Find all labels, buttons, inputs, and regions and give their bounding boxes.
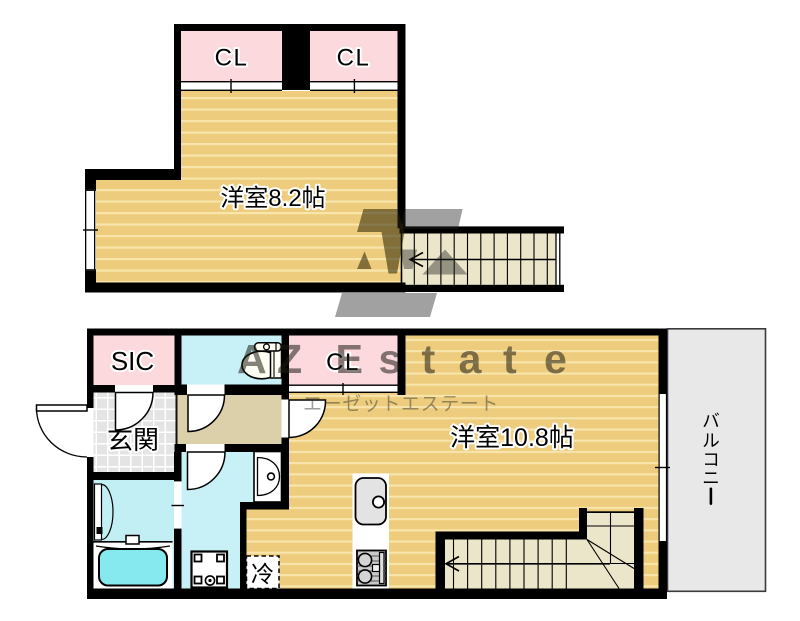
svg-text:エーゼットエステート: エーゼットエステート	[303, 393, 499, 415]
svg-text:コ: コ	[702, 450, 720, 470]
svg-text:SIC: SIC	[111, 346, 154, 376]
svg-text:バ: バ	[702, 411, 720, 431]
svg-text:CL: CL	[215, 45, 249, 72]
svg-text:ル: ル	[702, 431, 720, 451]
svg-text:洋室8.2帖: 洋室8.2帖	[220, 185, 325, 212]
svg-text:ニ: ニ	[702, 468, 720, 488]
svg-text:冷: 冷	[251, 561, 274, 587]
svg-text:CL: CL	[337, 45, 371, 72]
svg-text:洋室10.8帖: 洋室10.8帖	[450, 424, 574, 452]
